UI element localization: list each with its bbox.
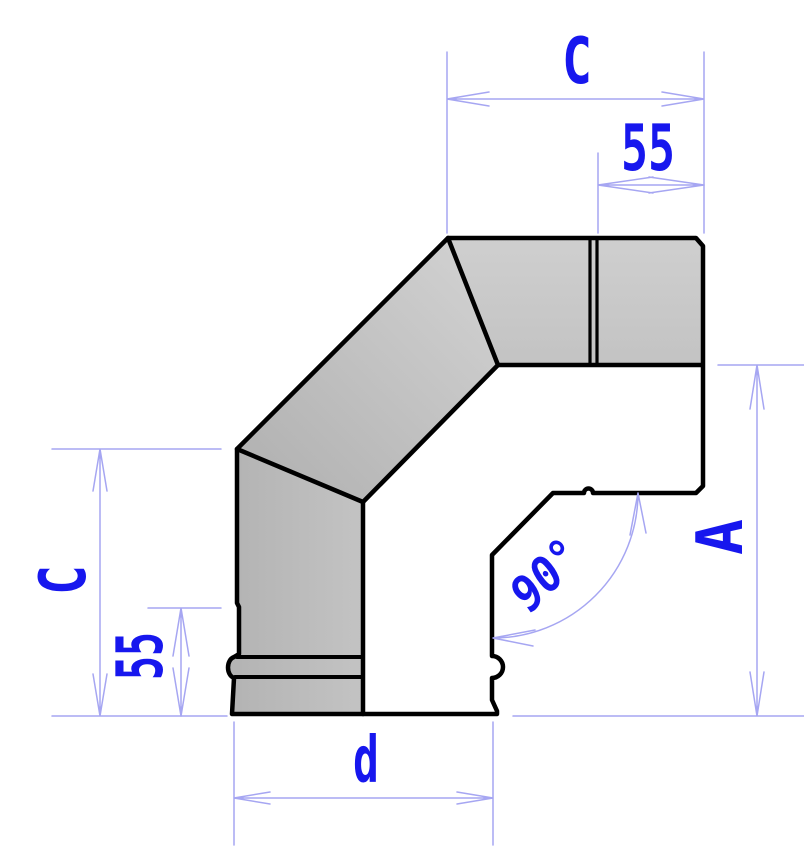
dim-left-socket-label: 55 (104, 632, 178, 680)
dim-left-length-label: C (27, 565, 101, 595)
dim-top-length-label: C (562, 25, 592, 99)
dim-diameter: d (234, 722, 493, 845)
dim-angle-label: 90° (499, 527, 594, 622)
dim-diameter-label: d (353, 724, 379, 798)
elbow-body (228, 238, 703, 714)
dim-left-socket: 55 (104, 608, 221, 716)
dim-top-socket-label: 55 (621, 112, 675, 186)
elbow-technical-drawing: C 55 C 55 A d 90° (0, 0, 804, 847)
dim-top-socket: 55 (598, 112, 704, 233)
dim-side-height-label: A (684, 519, 758, 555)
